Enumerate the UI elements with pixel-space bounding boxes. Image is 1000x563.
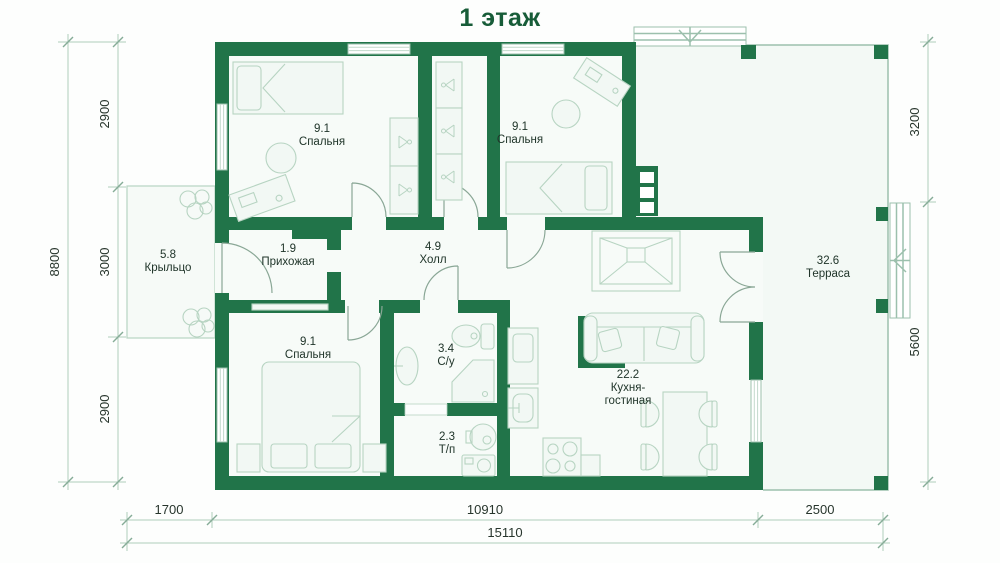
utility-area: 2.3 <box>439 431 455 443</box>
bathroom-area: 3.4 <box>438 343 455 355</box>
pillow-icon <box>271 444 307 468</box>
window <box>751 380 761 442</box>
terrace-area-label: 32.6 <box>817 255 839 267</box>
dim-bottom-2: 10910 <box>467 502 503 517</box>
kitchen-name-1: Кухня- <box>611 382 646 394</box>
bedroom2-name: Спальня <box>497 134 543 146</box>
counter-icon <box>581 455 600 476</box>
dim-left-1: 2900 <box>97 100 112 129</box>
bedroom1-area: 9.1 <box>314 123 330 135</box>
dim-right-1: 3200 <box>907 108 922 137</box>
pillow-icon <box>656 326 680 350</box>
pillow-icon <box>315 444 351 468</box>
entry-area: 1.9 <box>280 243 296 255</box>
dim-left-total: 8800 <box>47 248 62 277</box>
utility-door-threshold <box>405 404 447 415</box>
dim-bottom-1: 1700 <box>155 502 184 517</box>
closet-furniture <box>436 62 462 200</box>
kitchen-name-2: гостиная <box>605 395 652 407</box>
pillow-icon <box>237 66 261 110</box>
terrace-stairs-side <box>890 203 910 318</box>
stove-icon <box>543 438 581 476</box>
wardrobe-icon <box>390 118 418 214</box>
window <box>502 44 564 54</box>
entry-name: Прихожая <box>261 256 314 268</box>
dim-left-3: 2900 <box>97 395 112 424</box>
fridge-icon <box>508 328 538 384</box>
toilet-icon <box>452 324 494 349</box>
pillow-icon <box>598 328 622 352</box>
sofa-icon <box>584 313 704 363</box>
window <box>217 368 227 442</box>
bedroom1-name: Спальня <box>299 136 345 148</box>
dim-bottom-3: 2500 <box>806 502 835 517</box>
nightstand-icon <box>363 444 386 472</box>
window <box>348 44 410 54</box>
kitchen-area: 22.2 <box>617 369 639 381</box>
chair-icon <box>266 143 296 173</box>
pillow-icon <box>585 166 607 210</box>
chair-icon <box>552 100 580 128</box>
bedroom2-area: 9.1 <box>512 121 528 133</box>
dim-right-2: 5600 <box>907 328 922 357</box>
terrace-name: Терраса <box>806 268 851 280</box>
window <box>217 104 227 170</box>
terrace-stairs-top <box>634 27 746 46</box>
hall-area: 4.9 <box>425 241 441 253</box>
floor-plan: 9.1 Спальня 9.1 Спальня 9.1 Спальня 5.8 … <box>0 0 1000 563</box>
floor-plan-page: 1 этаж <box>0 0 1000 563</box>
kitchen-sink-icon <box>508 388 538 428</box>
washing-machine-icon <box>462 455 495 476</box>
dim-bottom-total: 15110 <box>487 525 522 540</box>
boiler-icon <box>470 424 496 450</box>
dim-left-2: 3000 <box>97 248 112 277</box>
nightstand-icon <box>237 444 260 472</box>
bedroom3-name: Спальня <box>285 349 331 361</box>
porch-name: Крыльцо <box>145 262 192 274</box>
hall-name: Холл <box>419 254 446 266</box>
utility-name: Т/п <box>439 444 455 456</box>
shelf-icon <box>252 304 328 310</box>
chimney-vents <box>640 172 654 213</box>
bedroom3-area: 9.1 <box>300 336 316 348</box>
porch-area: 5.8 <box>160 249 176 261</box>
bathroom-name: С/у <box>437 356 455 368</box>
